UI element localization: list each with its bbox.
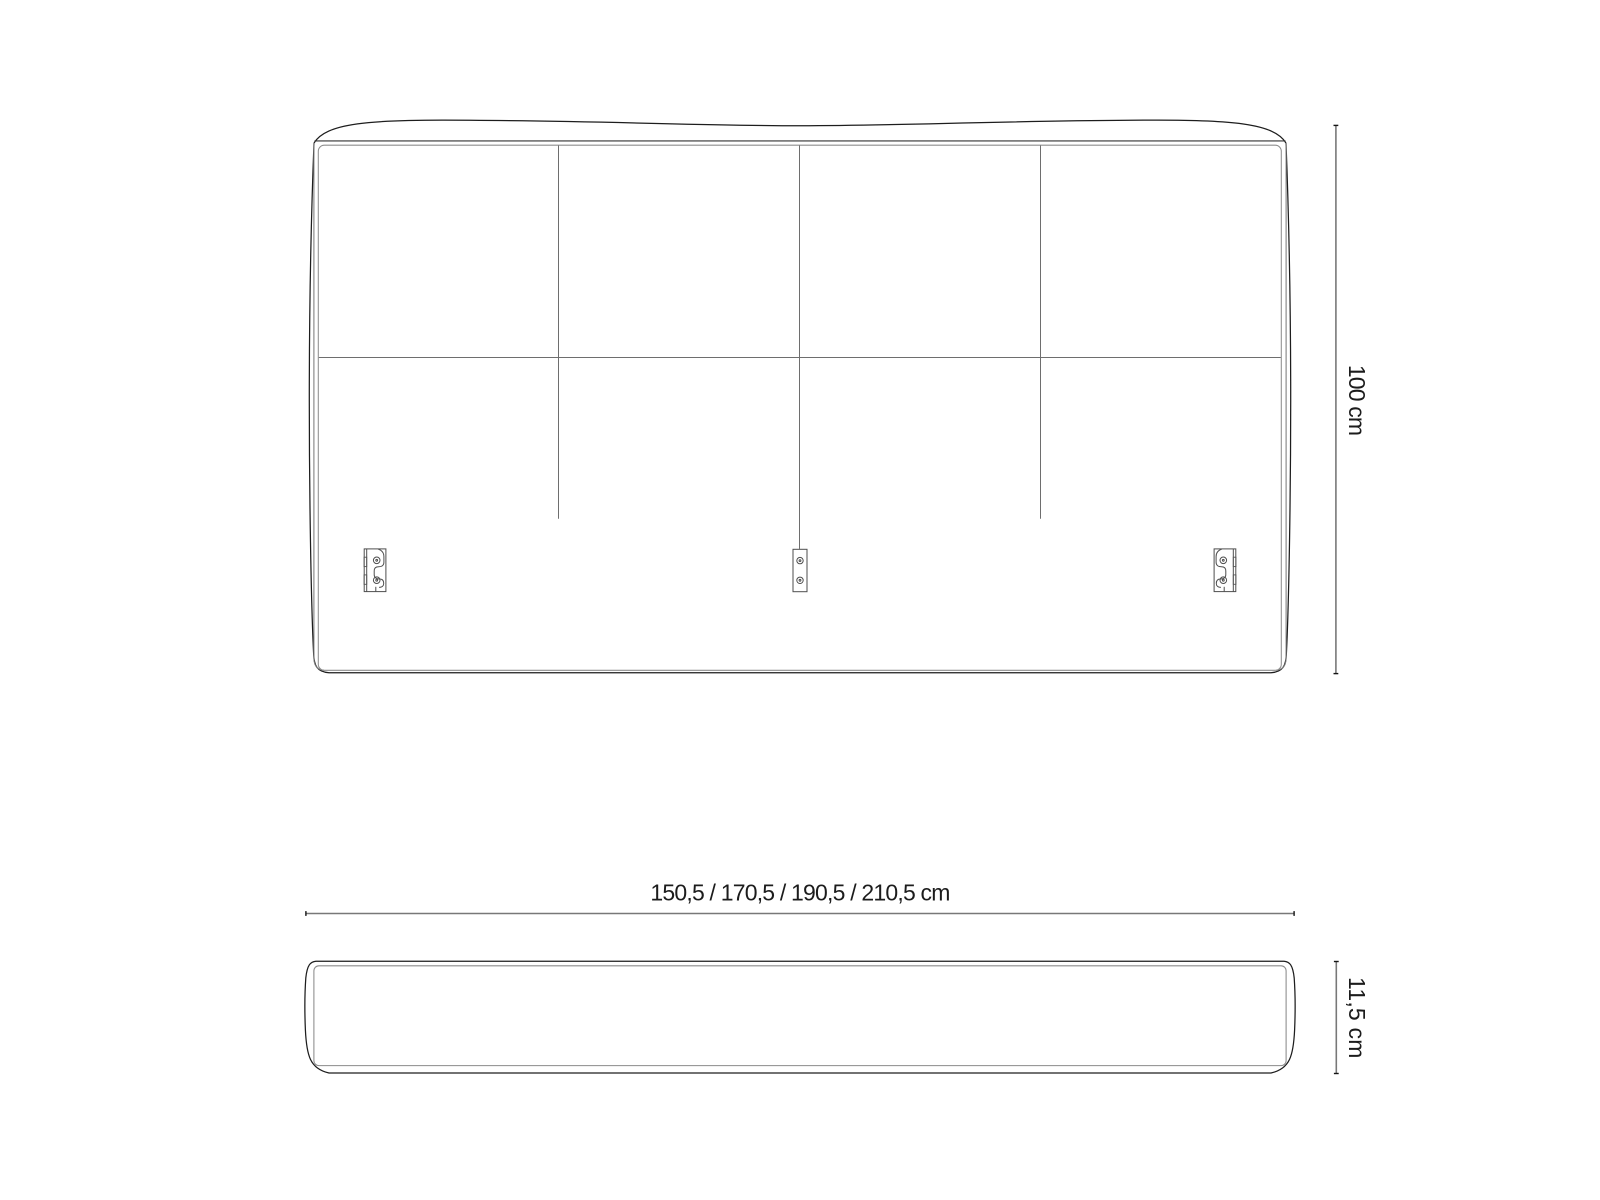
svg-text:11,5 cm: 11,5 cm xyxy=(1344,977,1370,1059)
svg-text:150,5 / 170,5 / 190,5 / 210,5: 150,5 / 170,5 / 190,5 / 210,5 cm xyxy=(650,880,949,906)
svg-text:100 cm: 100 cm xyxy=(1344,365,1370,435)
